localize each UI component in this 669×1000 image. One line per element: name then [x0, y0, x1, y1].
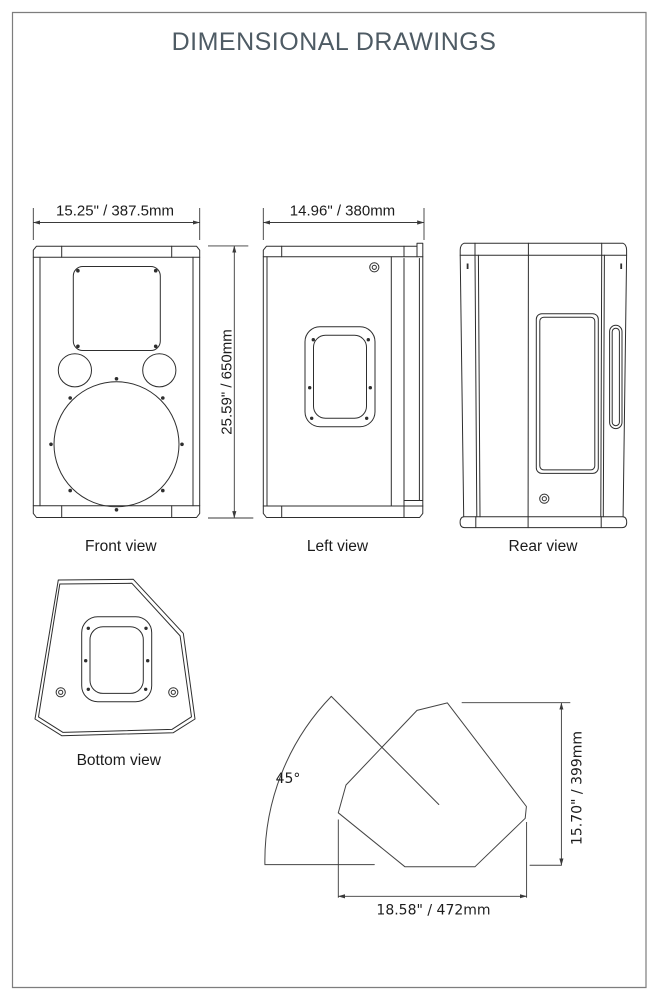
front-height-dimension-text: 25.59" / 650mm — [219, 329, 236, 434]
woofer-circle — [54, 382, 179, 507]
foot-right — [169, 688, 178, 697]
monitor-height-dimension: 15.70" / 399mm — [462, 703, 586, 866]
monitor-height-dimension-text: 15.70" / 399mm — [570, 731, 586, 845]
left-width-dimension: 14.96" / 380mm — [263, 203, 424, 241]
monitor-width-dimension: 18.58" / 472mm — [338, 820, 526, 919]
foot-left — [56, 688, 65, 697]
amp-plate — [536, 314, 598, 474]
front-height-dimension: 25.59" / 650mm — [208, 246, 253, 518]
front-view-drawing — [33, 246, 199, 517]
rear-handle-edge — [610, 325, 622, 428]
port-left — [58, 354, 91, 387]
monitor-width-dimension-text: 18.58" / 472mm — [376, 903, 490, 919]
bottom-handle — [82, 617, 152, 702]
left-view-drawing — [263, 243, 423, 517]
page-border — [13, 13, 647, 988]
rear-view-drawing — [460, 243, 627, 527]
monitor-angle-text: 45° — [276, 771, 301, 787]
dimensional-drawing-page: DIMENSIONAL DRAWINGS 15.25" / 387.5mm 25… — [0, 0, 669, 1000]
monitor-angle-drawing: 45° — [265, 696, 562, 866]
wedge-profile — [338, 703, 526, 867]
page-title: DIMENSIONAL DRAWINGS — [172, 28, 497, 56]
horn-cutout — [73, 267, 160, 351]
bottom-view-label: Bottom view — [77, 752, 162, 769]
port-right — [143, 354, 176, 387]
drawing-canvas: DIMENSIONAL DRAWINGS 15.25" / 387.5mm 25… — [0, 0, 669, 1000]
left-width-dimension-text: 14.96" / 380mm — [290, 203, 395, 220]
front-width-dimension-text: 15.25" / 387.5mm — [56, 203, 174, 220]
bottom-view-drawing — [35, 579, 195, 735]
front-width-dimension: 15.25" / 387.5mm — [33, 203, 199, 241]
rigging-point — [370, 263, 379, 272]
pole-mount — [540, 494, 549, 503]
rear-view-label: Rear view — [509, 538, 579, 555]
side-handle — [305, 327, 375, 427]
left-view-label: Left view — [307, 538, 369, 555]
front-view-label: Front view — [85, 538, 157, 555]
